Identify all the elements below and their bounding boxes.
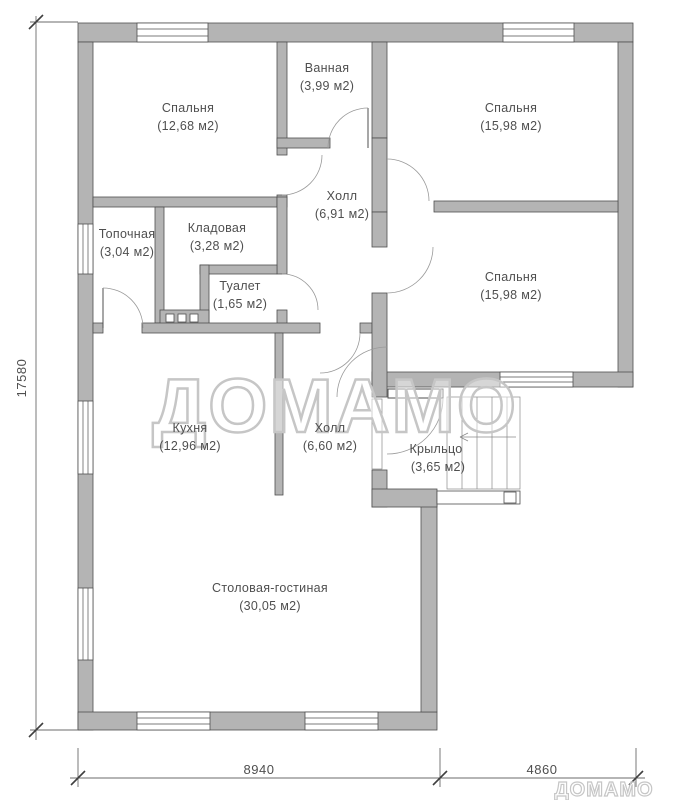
- wall-porch-corner-h: [372, 489, 437, 507]
- svg-text:(12,68 м2): (12,68 м2): [157, 119, 219, 133]
- wall-core-vertical-b: [372, 138, 387, 212]
- window-boiler-left: [78, 224, 93, 274]
- wall-core-vertical-a: [372, 42, 387, 138]
- svg-text:(1,65 м2): (1,65 м2): [213, 297, 267, 311]
- svg-text:Холл: Холл: [327, 189, 358, 203]
- svg-text:Туалет: Туалет: [219, 279, 260, 293]
- dimension-height-label: 17580: [14, 359, 29, 398]
- wall-bathroom-bottom: [277, 138, 330, 148]
- room-label-living: Столовая-гостиная (30,05 м2): [212, 581, 328, 613]
- watermark-small: ДОМАМО: [554, 779, 653, 800]
- dimension-left: 17580: [14, 15, 78, 740]
- window-kitchen-left: [78, 401, 93, 474]
- vent-square: [190, 314, 198, 322]
- dimension-width-right-label: 4860: [527, 762, 558, 777]
- room-label-hall-top: Холл (6,91 м2): [315, 189, 369, 221]
- room-label-bedroom-right: Спальня (15,98 м2): [480, 270, 542, 302]
- room-label-bathroom: Ванная (3,99 м2): [300, 61, 354, 93]
- wall-right-upper-wing: [618, 42, 633, 387]
- window-living-bottom-left: [137, 712, 210, 730]
- door-bedroom2: [387, 159, 429, 201]
- wall-storage-right: [277, 197, 287, 274]
- svg-text:(15,98 м2): (15,98 м2): [480, 119, 542, 133]
- svg-text:Спальня: Спальня: [162, 101, 214, 115]
- floor-plan-page: ДОМАМО Спальня (12,68 м2) Ванная (3,99 м…: [0, 0, 684, 800]
- wall-bedroom1-bottom: [93, 197, 277, 207]
- svg-text:Кухня: Кухня: [173, 421, 208, 435]
- svg-text:Кладовая: Кладовая: [188, 221, 246, 235]
- room-label-bedroom-top-right: Спальня (15,98 м2): [480, 101, 542, 133]
- door-bedroom3: [387, 247, 433, 293]
- window-living-bottom-right: [305, 712, 378, 730]
- svg-text:(12,96 м2): (12,96 м2): [159, 439, 221, 453]
- dimension-width-left-label: 8940: [244, 762, 275, 777]
- svg-text:Спальня: Спальня: [485, 101, 537, 115]
- room-label-toilet: Туалет (1,65 м2): [213, 279, 267, 311]
- wall-bedrooms-divider: [434, 201, 618, 212]
- wall-hall-main: [142, 323, 320, 333]
- wall-hall-main-left-stub: [93, 323, 103, 333]
- wall-core-vertical-c: [372, 212, 387, 247]
- floor-plan-svg: ДОМАМО Спальня (12,68 м2) Ванная (3,99 м…: [0, 0, 684, 800]
- svg-text:(3,99 м2): (3,99 м2): [300, 79, 354, 93]
- watermark-large: ДОМАМО: [152, 364, 518, 449]
- room-label-porch: Крыльцо (3,65 м2): [409, 442, 465, 474]
- vent-square: [178, 314, 186, 322]
- svg-text:(15,98 м2): (15,98 м2): [480, 288, 542, 302]
- wall-hall-main-right-stub: [360, 323, 372, 333]
- door-bathroom: [328, 108, 368, 148]
- wall-bottom: [78, 712, 437, 730]
- svg-text:(3,28 м2): (3,28 м2): [190, 239, 244, 253]
- svg-text:Столовая-гостиная: Столовая-гостиная: [212, 581, 328, 595]
- room-label-storage: Кладовая (3,28 м2): [188, 221, 246, 253]
- window-bedroom1-top: [137, 23, 208, 42]
- wall-right-lower-wing: [421, 505, 437, 712]
- svg-text:(6,60 м2): (6,60 м2): [303, 439, 357, 453]
- room-label-boiler: Топочная (3,04 м2): [99, 227, 156, 259]
- door-boiler: [103, 288, 143, 328]
- window-living-left: [78, 588, 93, 660]
- svg-text:Ванная: Ванная: [305, 61, 350, 75]
- svg-text:Крыльцо: Крыльцо: [409, 442, 462, 456]
- door-bedroom1: [282, 155, 322, 195]
- wall-toilet-top: [200, 265, 277, 274]
- svg-text:(6,91 м2): (6,91 м2): [315, 207, 369, 221]
- svg-text:(3,65 м2): (3,65 м2): [411, 460, 465, 474]
- vent-squares: [166, 314, 198, 322]
- svg-text:(3,04 м2): (3,04 м2): [100, 245, 154, 259]
- wall-boiler-right: [155, 207, 164, 323]
- svg-text:Спальня: Спальня: [485, 270, 537, 284]
- svg-text:(30,05 м2): (30,05 м2): [239, 599, 301, 613]
- svg-text:Холл: Холл: [315, 421, 346, 435]
- svg-text:Топочная: Топочная: [99, 227, 156, 241]
- porch-railing: [437, 491, 520, 504]
- door-toilet: [282, 274, 318, 310]
- room-label-bedroom-top-left: Спальня (12,68 м2): [157, 101, 219, 133]
- vent-square: [166, 314, 174, 322]
- window-bedroom2-top: [503, 23, 574, 42]
